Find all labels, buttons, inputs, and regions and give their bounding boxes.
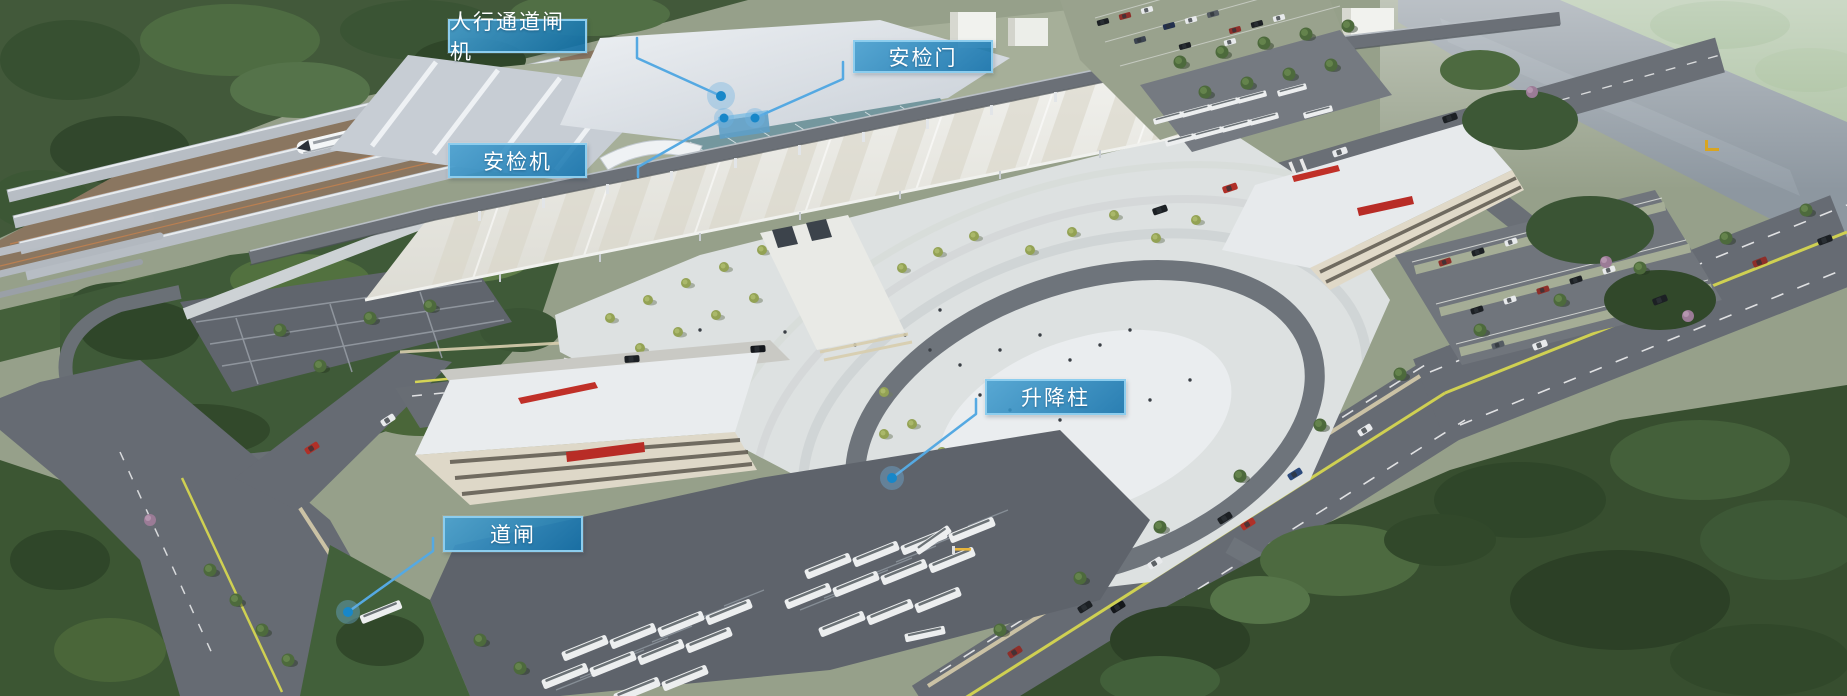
label-security-door-text: 安检门 <box>889 42 958 72</box>
label-security-scanner-text: 安检机 <box>483 146 552 176</box>
label-barrier-gate-text: 道闸 <box>490 519 536 549</box>
background-scene <box>0 0 1847 696</box>
label-lifting-bollard-text: 升降柱 <box>1021 382 1090 412</box>
label-lifting-bollard: 升降柱 <box>985 379 1126 415</box>
label-pedestrian-gate-text: 人行通道闸机 <box>450 6 585 66</box>
label-security-door: 安检门 <box>853 40 993 73</box>
label-pedestrian-gate: 人行通道闸机 <box>448 19 587 53</box>
station-aerial-render: 人行通道闸机 安检门 安检机 升降柱 道闸 <box>0 0 1847 696</box>
label-barrier-gate: 道闸 <box>443 516 583 552</box>
label-security-scanner: 安检机 <box>448 143 587 178</box>
